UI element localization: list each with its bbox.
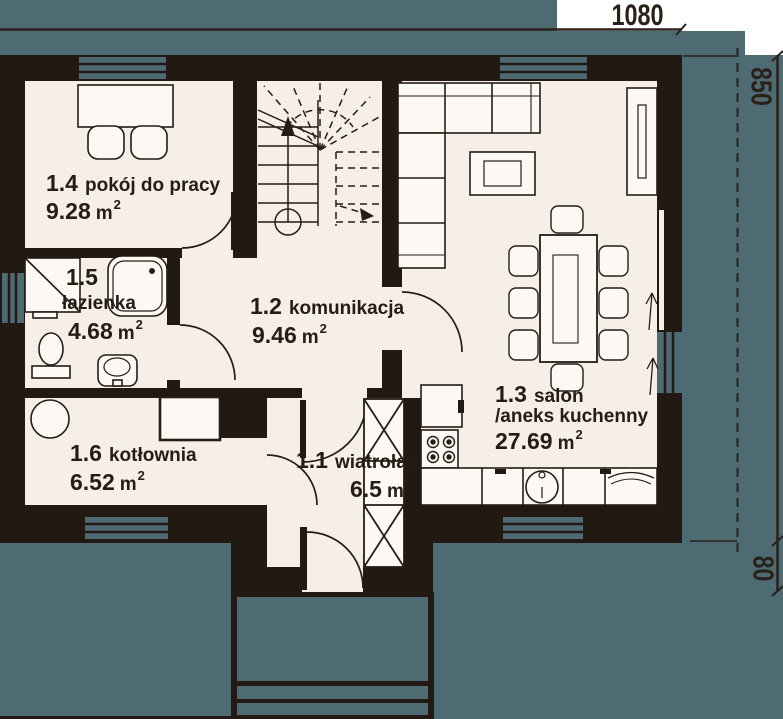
room-number: 1.6 — [70, 440, 102, 466]
room-number: 1.5 — [66, 264, 98, 290]
floor-plan: 1080 850 80 1.4pokój do pracy 9.28m2 1.5… — [0, 0, 783, 719]
room-area: 6.52 — [70, 469, 115, 495]
room-label-study: 1.4pokój do pracy — [46, 172, 220, 195]
boiler-tank — [31, 400, 69, 438]
room-area: 27.69 — [495, 428, 553, 454]
room-name: pokój do pracy — [85, 175, 220, 196]
dimension-width: 1080 — [589, 1, 687, 31]
room-area: 9.46 — [252, 322, 297, 348]
room-name: salon — [534, 386, 584, 407]
room-number: 1.4 — [46, 170, 78, 196]
room-area: 6.5 — [350, 476, 382, 502]
stove — [421, 430, 458, 468]
room-area-bathroom: 4.68m2 — [68, 320, 143, 343]
room-name: /aneks kuchenny — [495, 406, 648, 427]
tv-unit — [627, 88, 657, 195]
room-name2-livingroom: /aneks kuchenny — [495, 407, 648, 426]
room-label-vestibule: 1.1wiatrołap — [296, 449, 418, 472]
floor-plan-drawing — [0, 0, 783, 719]
entry-steps — [237, 597, 428, 715]
desk-chair — [131, 126, 167, 159]
dimension-entry: 80 — [748, 537, 777, 601]
toilet — [39, 333, 63, 365]
coffee-table — [470, 152, 535, 195]
room-area-hall: 9.46m2 — [252, 324, 327, 347]
room-name: komunikacja — [289, 298, 404, 319]
room-number: 1.3 — [495, 381, 527, 407]
room-number: 1.1 — [296, 447, 328, 473]
room-name: wiatrołap — [335, 452, 418, 473]
room-label-livingroom: 1.3salon — [495, 383, 584, 406]
room-area: 9.28 — [46, 198, 91, 224]
room-label-hall: 1.2komunikacja — [250, 295, 404, 318]
room-label-bathroom: 1.5 — [66, 266, 98, 289]
chimney-block — [220, 390, 267, 438]
room-area-livingroom: 27.69m2 — [495, 430, 583, 453]
room-name: łazienka — [62, 293, 136, 314]
desk-chair — [88, 126, 124, 159]
room-area: 4.68 — [68, 318, 113, 344]
room-name: kotłownia — [109, 445, 197, 466]
corner-sofa — [398, 83, 540, 133]
dimension-height: 850 — [746, 55, 775, 119]
fridge — [421, 385, 462, 427]
room-area-study: 9.28m2 — [46, 200, 121, 223]
room-number: 1.2 — [250, 293, 282, 319]
room-label-boilerroom: 1.6kotłownia — [70, 442, 197, 465]
room-name-bathroom: łazienka — [62, 294, 136, 313]
room-area-vestibule: 6.5m2 — [350, 478, 412, 501]
toilet-tank — [32, 366, 70, 378]
room-area-boilerroom: 6.52m2 — [70, 471, 145, 494]
door-leaf-study — [231, 192, 239, 250]
door-leaf-entrance — [300, 527, 307, 590]
desk — [78, 85, 173, 127]
furnace — [160, 397, 220, 440]
